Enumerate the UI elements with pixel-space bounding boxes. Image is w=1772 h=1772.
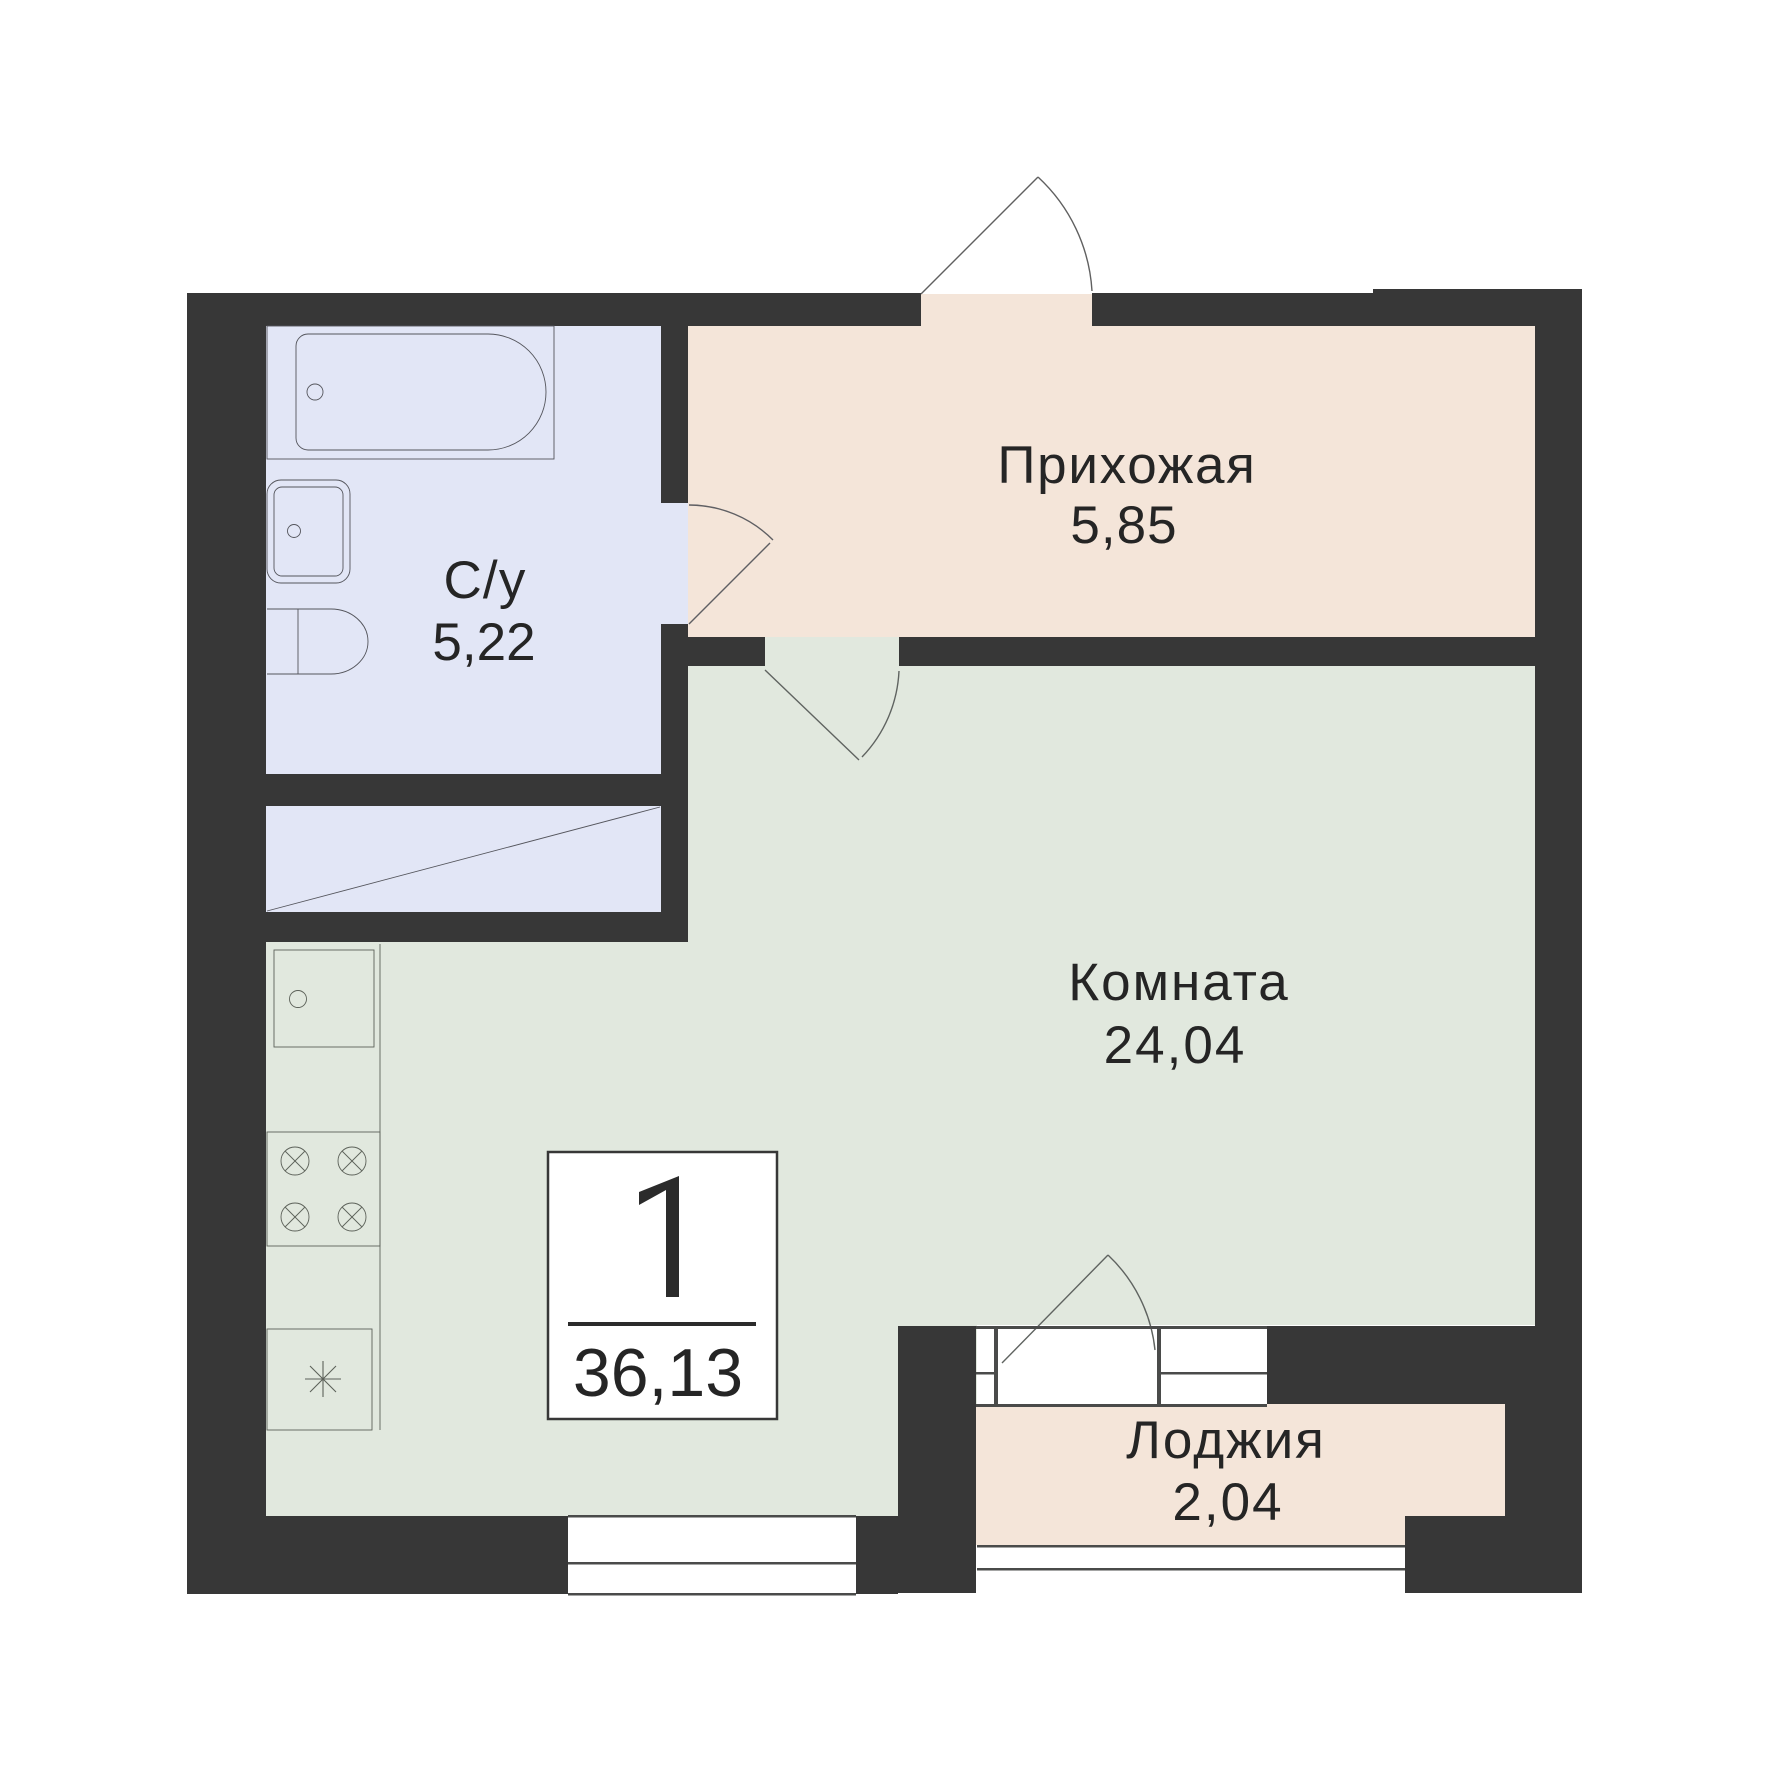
svg-text:Комната: Комната [1068,953,1290,1012]
svg-text:Прихожая: Прихожая [997,436,1256,495]
svg-text:36,13: 36,13 [573,1335,743,1411]
svg-text:С/у: С/у [443,551,526,610]
svg-text:2,04: 2,04 [1172,1473,1283,1532]
svg-text:5,85: 5,85 [1070,496,1177,555]
svg-text:24,04: 24,04 [1104,1016,1247,1075]
svg-text:Лоджия: Лоджия [1126,1411,1326,1470]
svg-text:5,22: 5,22 [432,613,535,672]
